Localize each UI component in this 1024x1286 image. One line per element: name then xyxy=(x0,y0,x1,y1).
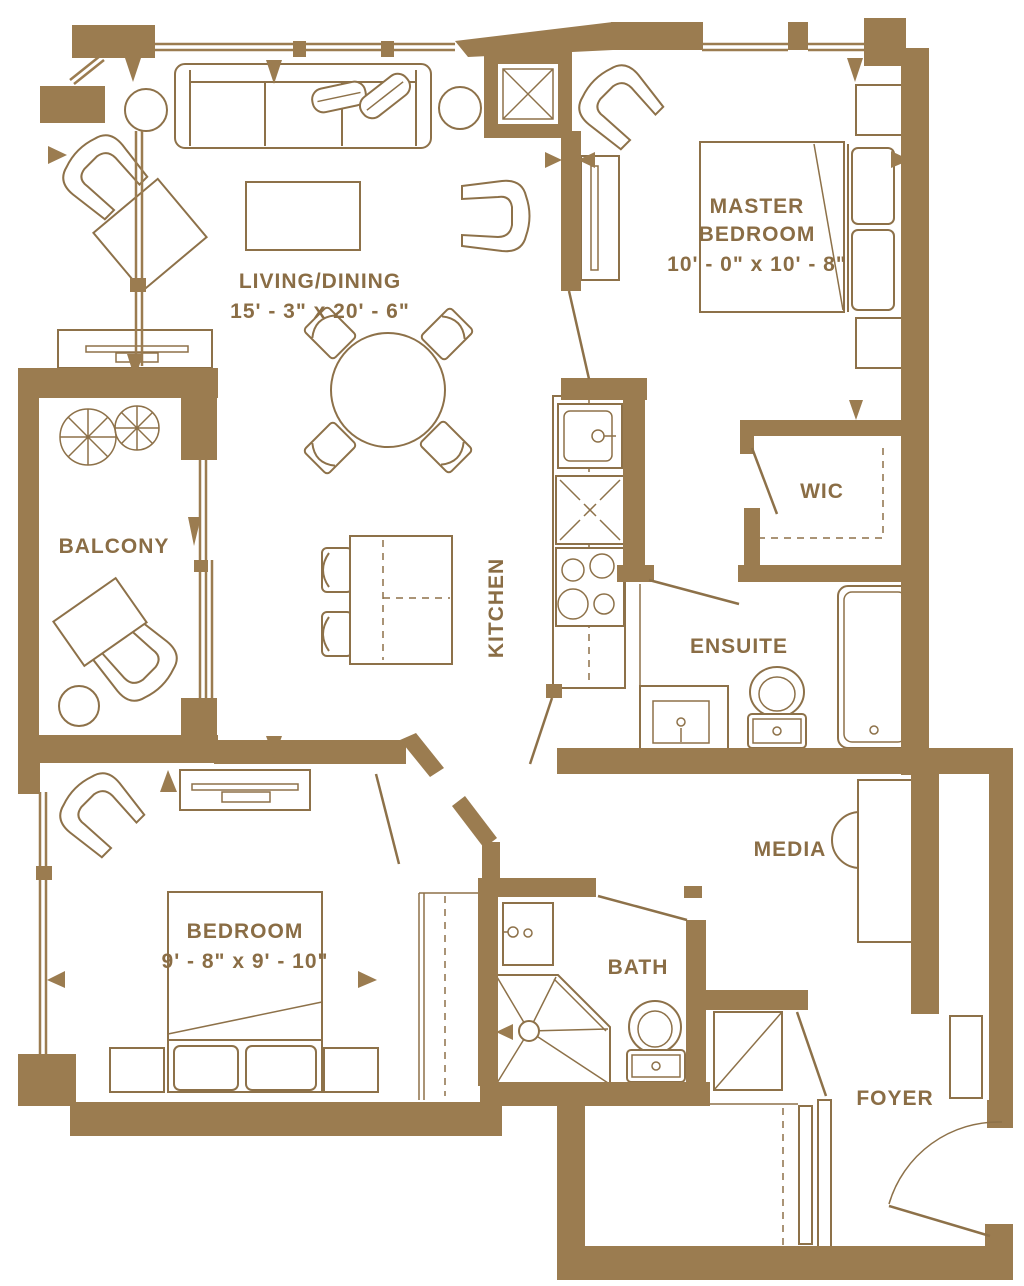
shower-drain xyxy=(519,1021,539,1041)
shaft-x xyxy=(498,64,558,124)
dishwasher xyxy=(556,476,624,544)
balcony-sliding-door xyxy=(200,460,212,702)
side-table xyxy=(125,89,167,131)
room-label-ensuite: ENSUITE xyxy=(690,635,788,658)
room-label-living-dining: LIVING/DINING xyxy=(239,270,401,293)
armchair xyxy=(569,55,667,153)
balcony-side-table xyxy=(59,686,99,726)
room-label-master-bedroom-line2: BEDROOM xyxy=(699,223,816,246)
pillow xyxy=(852,148,894,224)
media-desk xyxy=(832,780,914,942)
bedroom-dresser xyxy=(180,770,310,810)
room-label-balcony: BALCONY xyxy=(59,535,170,558)
room-label-foyer: FOYER xyxy=(856,1087,933,1110)
ensuite-vanity xyxy=(640,686,728,752)
pillow xyxy=(246,1046,316,1090)
room-dims-master-bedroom: 10' - 0" x 10' - 8" xyxy=(667,253,847,276)
master-console xyxy=(581,156,619,280)
bedroom-closet xyxy=(419,893,478,1100)
room-label-media: MEDIA xyxy=(754,838,827,861)
pillow xyxy=(852,230,894,310)
room-dims-bedroom: 9' - 8" x 9' - 10" xyxy=(162,950,329,973)
sofa xyxy=(175,64,431,148)
balcony-table xyxy=(53,578,146,666)
floor-plan-page: LIVING/DINING 15' - 3" x 20' - 6" MASTER… xyxy=(0,0,1024,1286)
nightstand xyxy=(856,318,902,368)
room-label-bath: BATH xyxy=(608,956,669,979)
floor-plan: LIVING/DINING 15' - 3" x 20' - 6" MASTER… xyxy=(0,0,1024,1286)
furniture-layer xyxy=(50,55,982,1248)
dining-set xyxy=(303,306,474,475)
desk-chair xyxy=(832,812,860,868)
bath-door xyxy=(598,896,687,920)
armchair xyxy=(462,181,530,251)
closet-door xyxy=(797,1012,826,1096)
kitchen-door xyxy=(530,698,552,764)
ensuite-toilet xyxy=(748,667,806,748)
pillow xyxy=(174,1046,238,1090)
island-table xyxy=(322,536,452,664)
stove xyxy=(556,548,624,626)
bathtub xyxy=(838,586,912,748)
room-label-master-bedroom-line1: MASTER xyxy=(710,195,805,218)
room-dims-living-dining: 15' - 3" x 20' - 6" xyxy=(230,300,410,323)
foyer-bench xyxy=(950,1016,982,1098)
room-label-wic: WIC xyxy=(800,480,844,503)
room-label-bedroom: BEDROOM xyxy=(187,920,304,943)
side-table xyxy=(439,87,481,129)
bath-toilet xyxy=(627,1001,685,1082)
entry-door xyxy=(889,1122,1002,1236)
nightstand xyxy=(110,1048,164,1092)
coffee-table xyxy=(246,182,360,250)
balcony-tree xyxy=(60,409,116,465)
ottoman xyxy=(93,179,206,291)
room-label-kitchen: KITCHEN xyxy=(485,558,508,658)
wic-door xyxy=(752,448,777,514)
kitchen-counter xyxy=(553,396,625,688)
bath-vanity xyxy=(503,903,553,965)
ensuite-door xyxy=(649,580,739,604)
foyer-closet xyxy=(585,1100,831,1248)
nightstand xyxy=(856,85,902,135)
dining-table xyxy=(331,333,445,447)
bedroom-door xyxy=(376,774,399,864)
armchair xyxy=(50,763,148,861)
laundry-closet xyxy=(714,1012,782,1090)
nightstand xyxy=(324,1048,378,1092)
balcony-tree xyxy=(115,406,159,450)
master-door xyxy=(569,291,589,379)
